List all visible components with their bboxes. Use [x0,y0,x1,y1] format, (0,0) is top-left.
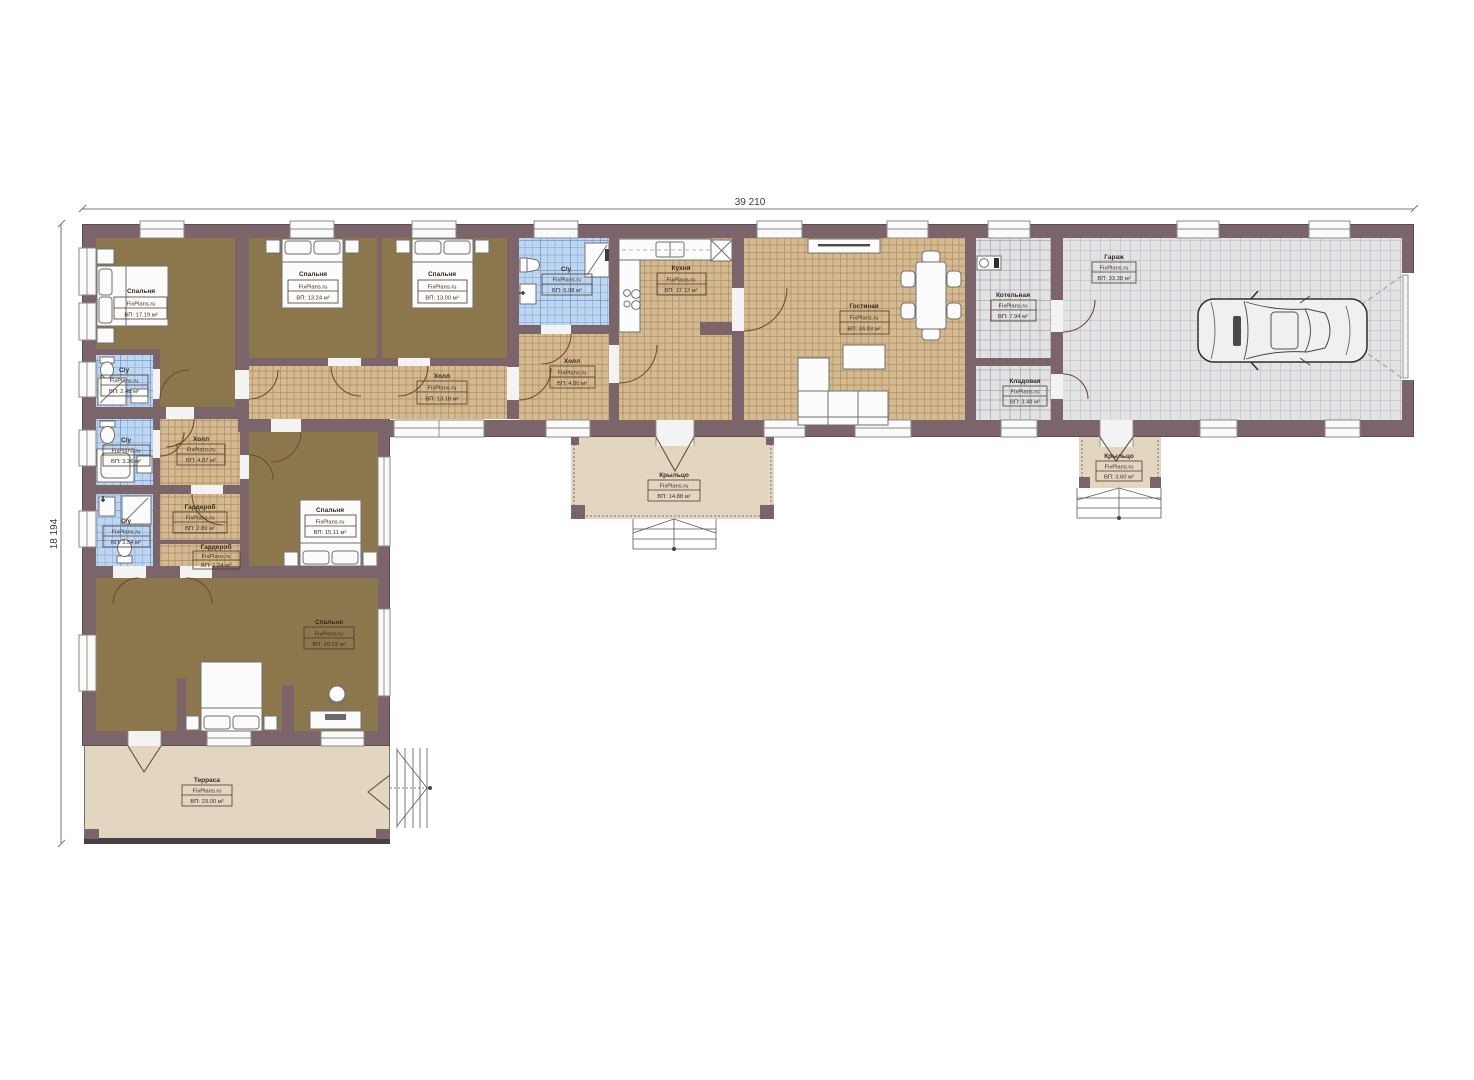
svg-text:FixPlans.ru: FixPlans.ru [202,554,231,560]
svg-text:FixPlans.ru: FixPlans.ru [316,520,345,526]
svg-text:FixPlans.ru: FixPlans.ru [1011,390,1040,396]
svg-text:ВП: 7.94 м²: ВП: 7.94 м² [998,314,1028,320]
svg-text:FixPlans.ru: FixPlans.ru [186,516,215,522]
svg-text:ВП: 6.98 м²: ВП: 6.98 м² [552,288,582,294]
svg-text:FixPlans.ru: FixPlans.ru [850,316,879,322]
svg-text:Спальня: Спальня [299,271,327,278]
svg-text:Спальня: Спальня [316,507,344,514]
svg-text:Спальня: Спальня [127,288,155,295]
svg-text:ВП: 17.13 м²: ВП: 17.13 м² [664,288,697,294]
svg-text:Спальня: Спальня [428,271,456,278]
svg-text:ВП: 20.23 м²: ВП: 20.23 м² [312,642,345,648]
svg-text:Гараж: Гараж [1104,254,1124,261]
svg-text:FixPlans.ru: FixPlans.ru [660,484,689,490]
svg-text:С/у: С/у [561,266,572,273]
svg-text:С/у: С/у [121,518,132,525]
svg-text:ВП: 3.48 м²: ВП: 3.48 м² [1010,400,1040,406]
svg-text:FixPlans.ru: FixPlans.ru [428,386,457,392]
svg-text:ВП: 3.26 м²: ВП: 3.26 м² [111,459,141,465]
svg-text:FixPlans.ru: FixPlans.ru [558,371,587,377]
svg-text:Кладовая: Кладовая [1009,378,1040,385]
svg-text:FixPlans.ru: FixPlans.ru [187,448,216,454]
svg-text:С/у: С/у [119,367,130,374]
svg-text:ВП: 33.38 м²: ВП: 33.38 м² [1097,276,1130,282]
svg-text:FixPlans.ru: FixPlans.ru [127,302,156,308]
svg-text:ВП: 1.24 м²: ВП: 1.24 м² [201,563,231,569]
svg-text:Гардероб: Гардероб [201,543,232,551]
svg-text:ВП: 4.87 м²: ВП: 4.87 м² [186,458,216,464]
svg-text:Терраса: Терраса [194,777,221,784]
svg-text:ВП: 14.88 м²: ВП: 14.88 м² [657,494,690,500]
svg-text:FixPlans.ru: FixPlans.ru [428,285,457,291]
svg-text:ВП: 15.11 м²: ВП: 15.11 м² [314,530,347,536]
svg-text:ВП: 13.24 м²: ВП: 13.24 м² [296,296,329,302]
svg-text:FixPlans.ru: FixPlans.ru [315,632,344,638]
svg-text:FixPlans.ru: FixPlans.ru [1100,266,1129,272]
svg-text:39 210: 39 210 [735,197,766,208]
svg-text:FixPlans.ru: FixPlans.ru [193,789,222,795]
svg-text:Крыльцо: Крыльцо [659,472,689,479]
svg-text:ВП: 4.80 м²: ВП: 4.80 м² [557,381,587,387]
svg-text:Гардероб: Гардероб [185,503,216,511]
svg-text:ВП: 2.48 м²: ВП: 2.48 м² [109,389,139,395]
svg-text:ВП: 17.19 м²: ВП: 17.19 м² [124,313,157,319]
svg-text:Крыльцо: Крыльцо [1104,453,1134,460]
svg-text:ВП: 34.93 м²: ВП: 34.93 м² [847,327,880,333]
svg-text:Холл: Холл [564,358,580,365]
svg-text:18 194: 18 194 [49,518,60,549]
svg-text:Котельная: Котельная [996,292,1030,299]
svg-text:ВП: 13.18 м²: ВП: 13.18 м² [425,397,458,403]
svg-text:FixPlans.ru: FixPlans.ru [553,278,582,284]
svg-text:Холл: Холл [434,373,450,380]
svg-text:FixPlans.ru: FixPlans.ru [112,530,141,536]
svg-text:ВП: 3.54 м²: ВП: 3.54 м² [111,540,141,546]
svg-text:FixPlans.ru: FixPlans.ru [110,379,139,385]
svg-text:ВП: 2.89 м²: ВП: 2.89 м² [185,526,215,532]
svg-text:С/у: С/у [121,437,132,444]
svg-text:Кухня: Кухня [672,265,691,272]
svg-text:ВП: 23.00 м²: ВП: 23.00 м² [190,799,223,805]
svg-text:Спальня: Спальня [315,619,343,626]
svg-text:FixPlans.ru: FixPlans.ru [1105,465,1134,471]
svg-text:FixPlans.ru: FixPlans.ru [667,278,696,284]
svg-text:FixPlans.ru: FixPlans.ru [299,285,328,291]
svg-text:FixPlans.ru: FixPlans.ru [112,449,141,455]
svg-text:Холл: Холл [193,436,209,443]
svg-text:ВП: 13.00 м²: ВП: 13.00 м² [425,296,458,302]
svg-text:FixPlans.ru: FixPlans.ru [999,304,1028,310]
svg-text:Гостиная: Гостиная [849,303,879,310]
svg-text:ВП: 3.60 м²: ВП: 3.60 м² [1104,475,1134,481]
